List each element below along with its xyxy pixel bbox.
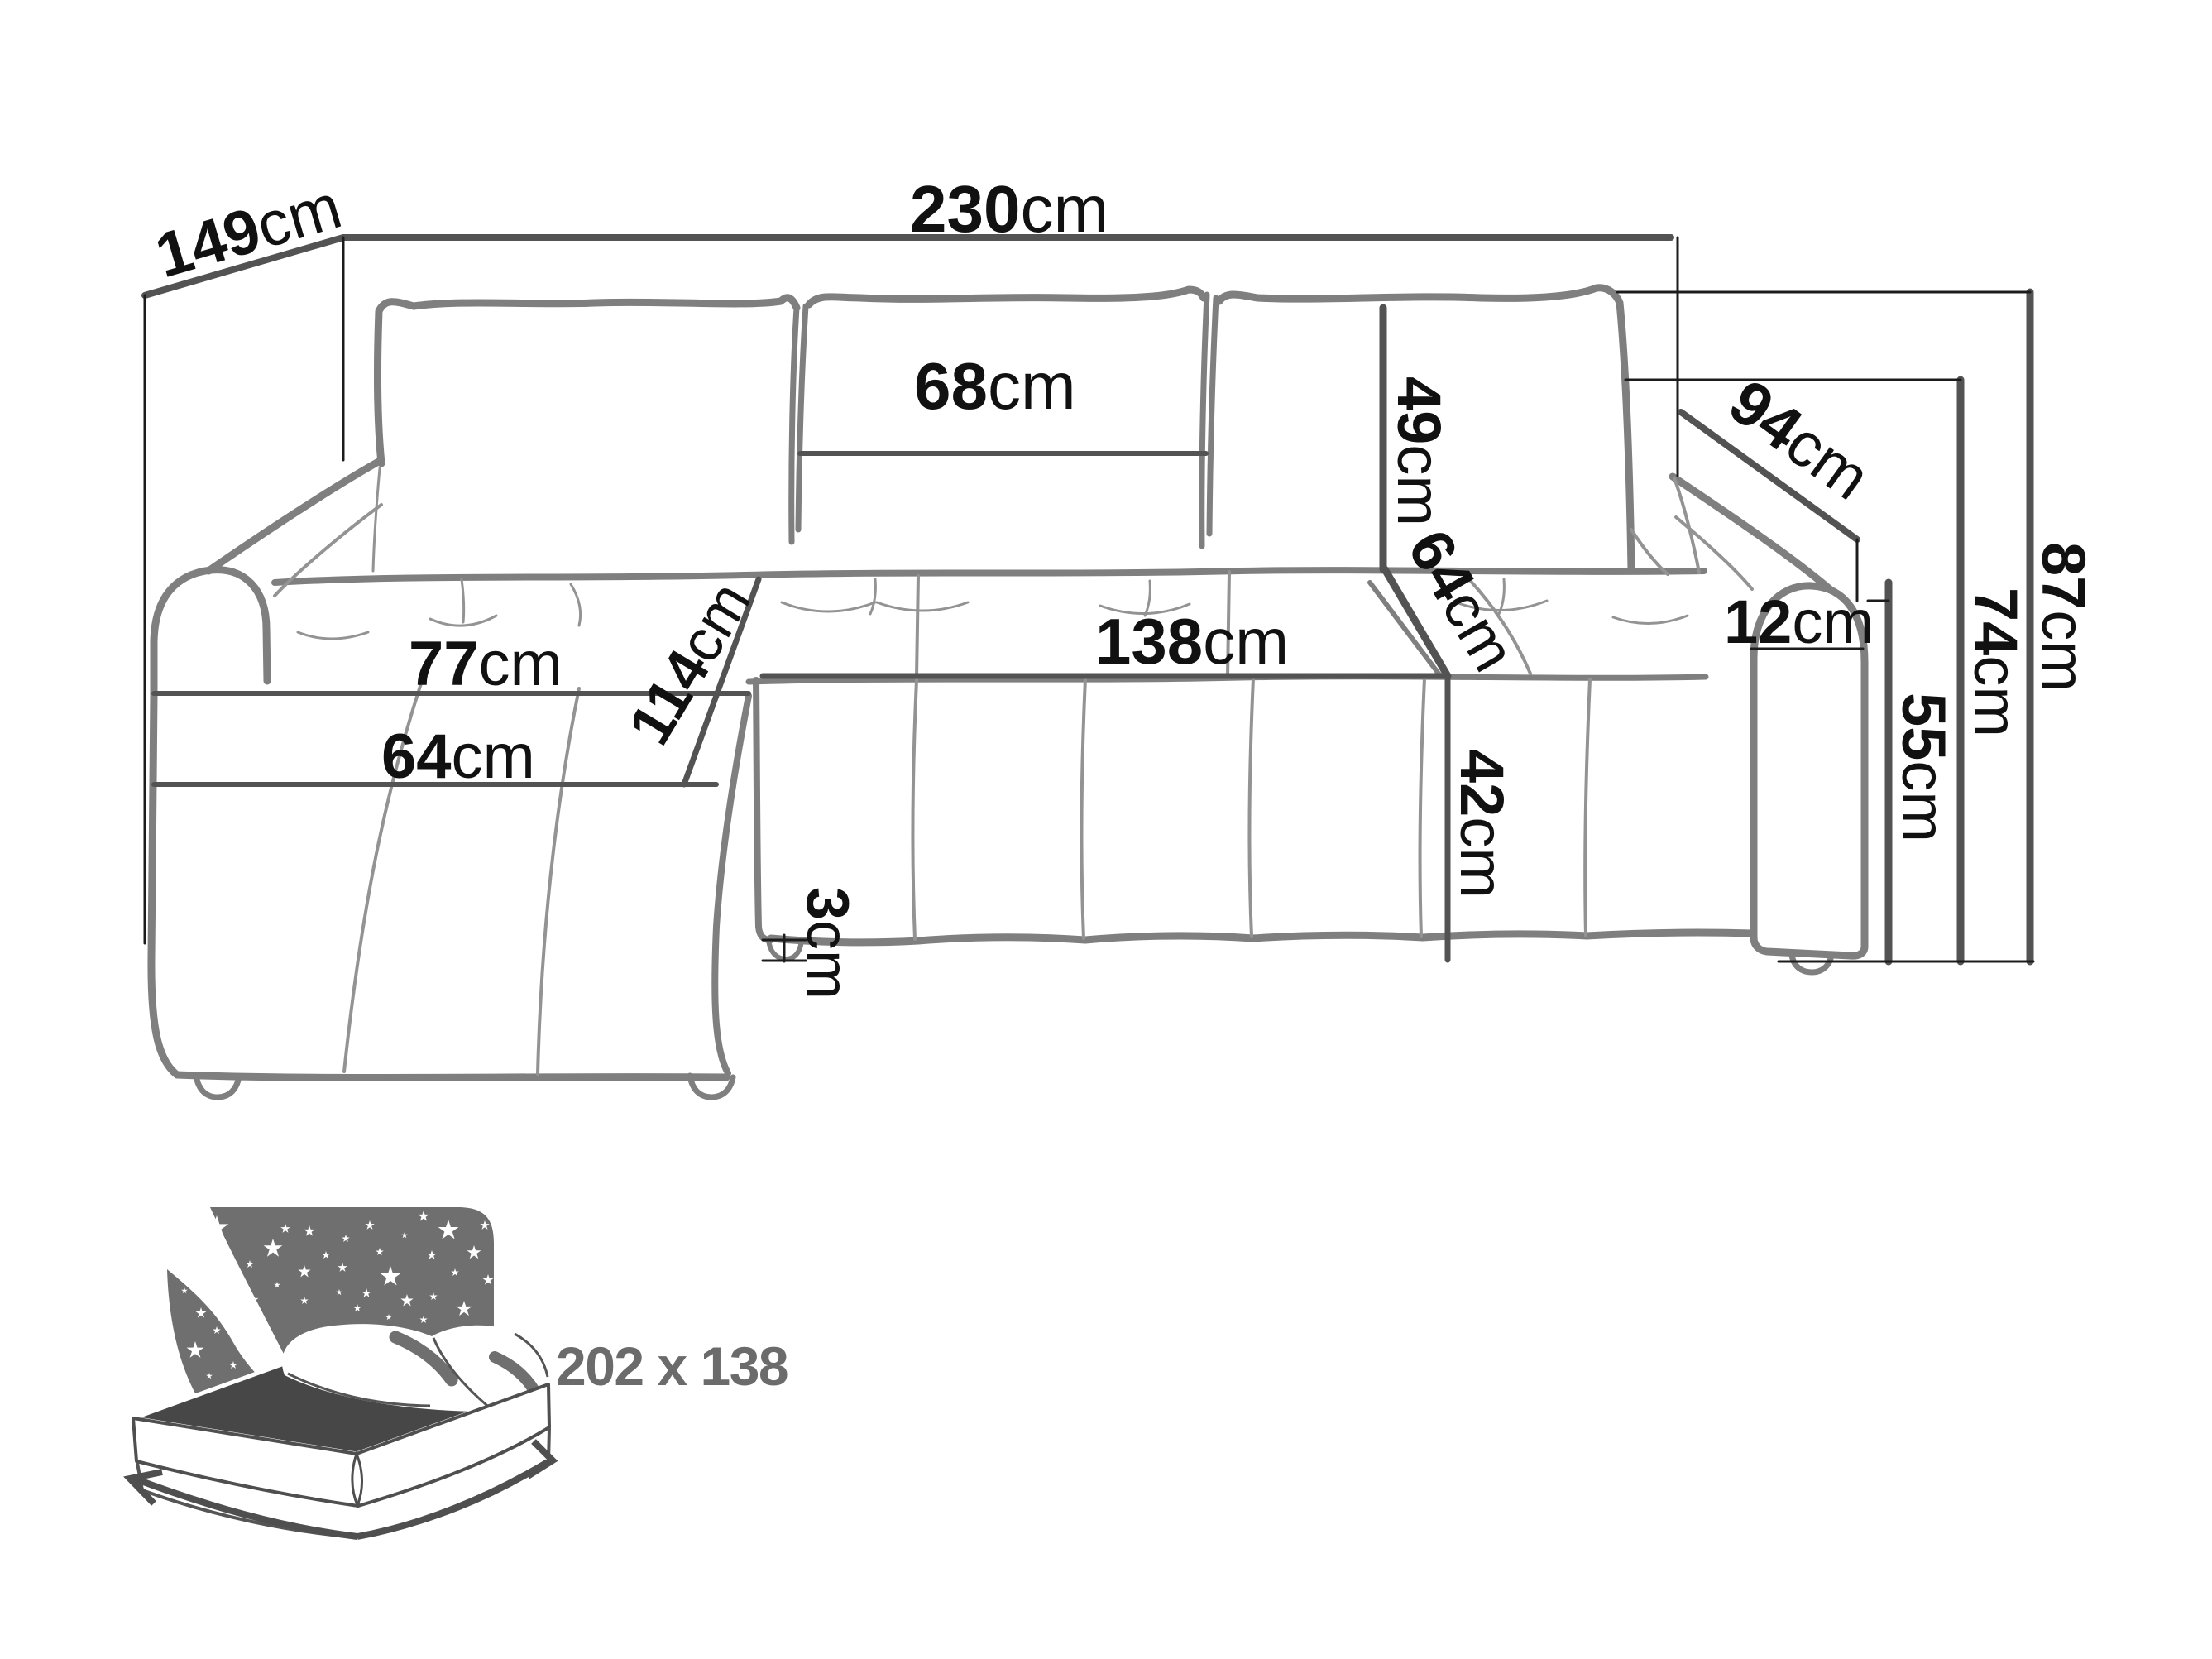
svg-text:87cm: 87cm: [2029, 542, 2098, 692]
svg-text:3cm: 3cm: [794, 887, 860, 1000]
svg-text:230cm: 230cm: [910, 172, 1108, 246]
svg-text:42cm: 42cm: [1448, 749, 1516, 899]
svg-text:55cm: 55cm: [1889, 693, 1958, 842]
svg-text:49cm: 49cm: [1385, 376, 1453, 526]
svg-text:12cm: 12cm: [1724, 587, 1874, 656]
svg-text:68cm: 68cm: [914, 349, 1076, 423]
svg-text:77cm: 77cm: [409, 629, 563, 699]
svg-text:202 x 138: 202 x 138: [556, 1335, 788, 1397]
svg-text:74cm: 74cm: [1961, 587, 2030, 737]
svg-text:138cm: 138cm: [1095, 605, 1289, 678]
svg-text:64cm: 64cm: [381, 722, 535, 792]
